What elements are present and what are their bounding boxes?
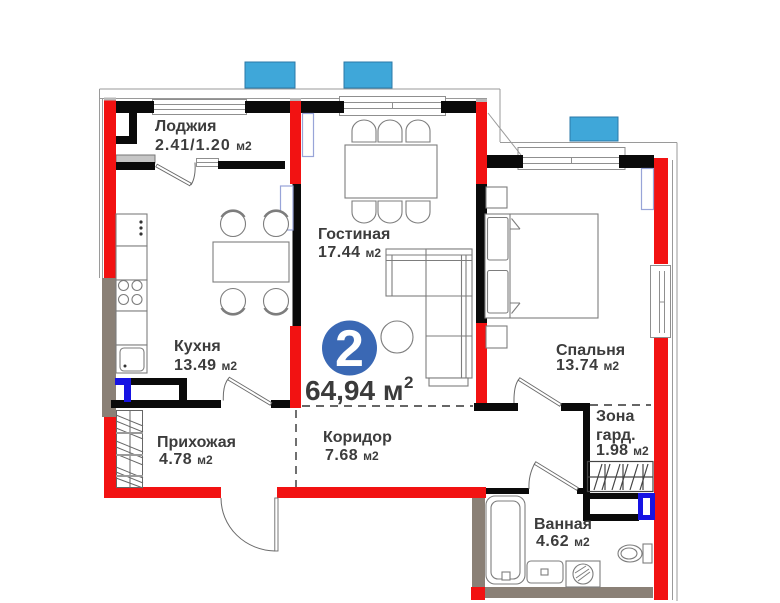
svg-text:4.78 м2: 4.78 м2 — [159, 451, 213, 468]
svg-text:Прихожая: Прихожая — [157, 434, 236, 451]
svg-text:13.74 м2: 13.74 м2 — [556, 357, 619, 374]
svg-text:Лоджия: Лоджия — [155, 118, 216, 135]
svg-text:2.41/1.20 м2: 2.41/1.20 м2 — [155, 137, 252, 154]
svg-text:2: 2 — [404, 373, 413, 392]
svg-text:2: 2 — [335, 320, 364, 378]
svg-text:7.68 м2: 7.68 м2 — [325, 447, 379, 464]
svg-text:13.49 м2: 13.49 м2 — [174, 357, 237, 374]
svg-text:64,94 м: 64,94 м — [305, 375, 404, 406]
svg-text:Ванная: Ванная — [534, 516, 592, 533]
svg-text:4.62 м2: 4.62 м2 — [536, 533, 590, 550]
svg-text:Коридор: Коридор — [323, 429, 392, 446]
svg-text:1.98 м2: 1.98 м2 — [596, 442, 649, 459]
svg-text:17.44 м2: 17.44 м2 — [318, 244, 381, 261]
svg-text:Гостиная: Гостиная — [318, 226, 390, 243]
svg-text:Зона: Зона — [596, 408, 634, 425]
svg-text:Кухня: Кухня — [174, 338, 221, 355]
